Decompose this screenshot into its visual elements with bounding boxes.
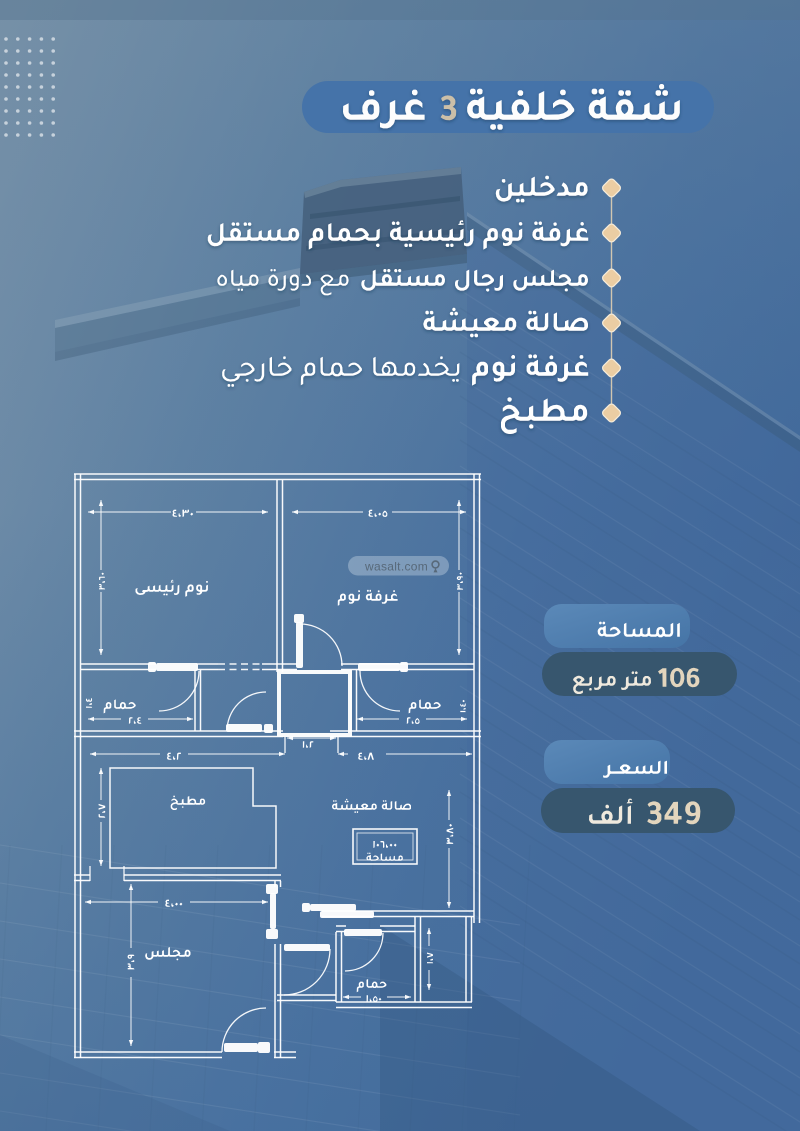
svg-text:wasalt.com: wasalt.com <box>364 560 428 574</box>
